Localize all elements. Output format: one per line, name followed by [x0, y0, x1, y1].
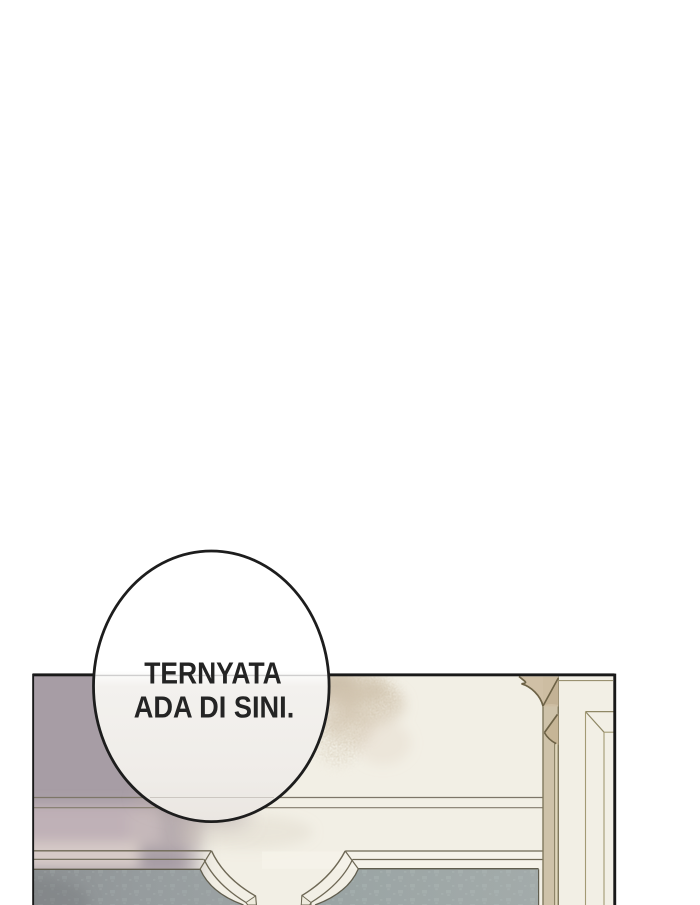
svg-text:TERNYATA: TERNYATA: [144, 656, 282, 690]
svg-text:ADA DI SINI.: ADA DI SINI.: [134, 690, 295, 724]
